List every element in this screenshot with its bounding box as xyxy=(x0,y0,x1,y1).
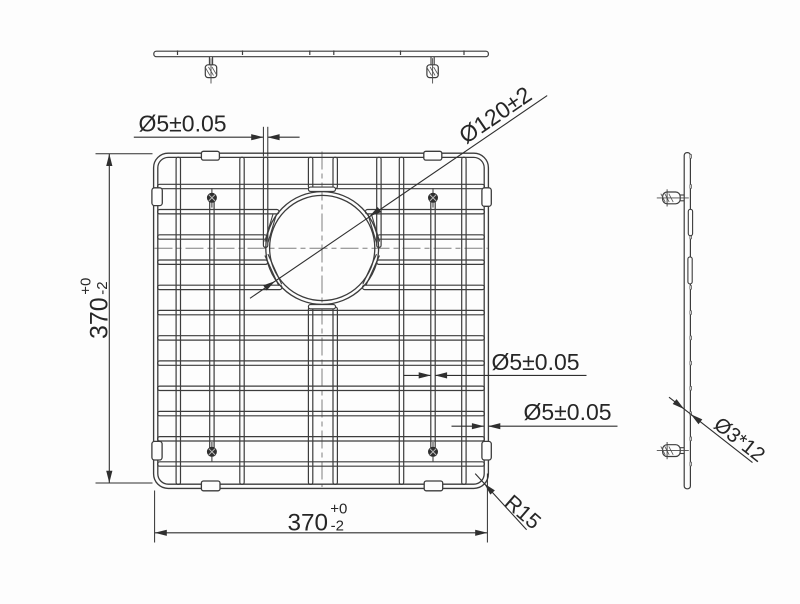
svg-text:-2: -2 xyxy=(331,517,344,534)
svg-text:370: 370 xyxy=(288,509,329,536)
svg-text:+0: +0 xyxy=(78,278,95,295)
svg-text:370: 370 xyxy=(85,297,113,339)
svg-text:-2: -2 xyxy=(94,281,111,294)
svg-text:Ø5±0.05: Ø5±0.05 xyxy=(492,349,580,375)
svg-text:+0: +0 xyxy=(330,500,347,517)
svg-text:Ø5±0.05: Ø5±0.05 xyxy=(139,111,227,137)
svg-text:Ø5±0.05: Ø5±0.05 xyxy=(524,399,612,425)
